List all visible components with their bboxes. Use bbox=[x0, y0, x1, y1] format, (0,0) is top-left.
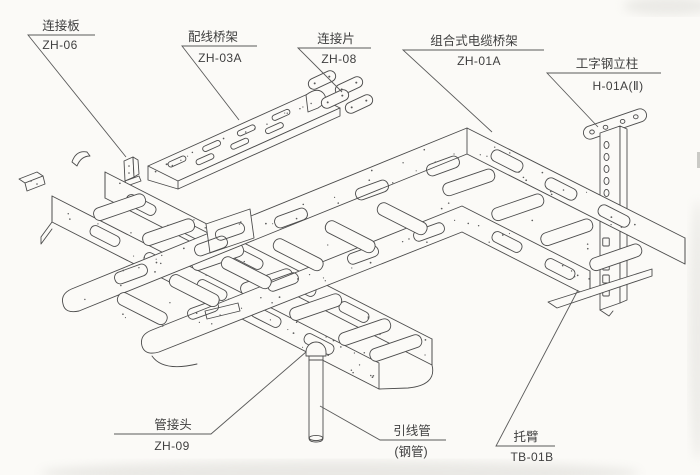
pipe-body bbox=[309, 356, 323, 442]
callout-tb01b: 托臂 TB-01B bbox=[496, 290, 578, 464]
callout-zh06: 连接板 ZH-06 bbox=[28, 18, 126, 157]
callout-zh09: 管接头 ZH-09 bbox=[114, 352, 306, 453]
label-cable-tray-code: ZH-01A bbox=[457, 54, 501, 68]
isometric-drawing: 连接板 ZH-06 配线桥架 ZH-03A 连接片 ZH-08 组合式电缆桥架 … bbox=[0, 0, 700, 475]
label-column-title: 工字钢立柱 bbox=[576, 56, 639, 71]
label-leader bbox=[496, 290, 578, 446]
label-leader bbox=[28, 35, 126, 157]
label-column-code: H-01A(Ⅱ) bbox=[592, 79, 643, 93]
label-pipe-joint-code: ZH-09 bbox=[154, 439, 189, 453]
callout-zh03a: 配线桥架 ZH-03A bbox=[182, 30, 257, 120]
label-connection-plate-title: 连接板 bbox=[42, 18, 80, 33]
callout-zh01a: 组合式电缆桥架 ZH-01A bbox=[403, 33, 544, 132]
label-connector-strip-code: ZH-08 bbox=[321, 52, 356, 66]
clip-front bbox=[124, 157, 134, 181]
wiring-tray-zh03a bbox=[148, 90, 340, 189]
label-support-arm-title: 托臂 bbox=[513, 430, 538, 444]
label-connector-strip-title: 连接片 bbox=[317, 31, 355, 46]
lead-pipe-assembly bbox=[306, 342, 326, 442]
label-connection-plate-code: ZH-06 bbox=[42, 38, 77, 52]
callout-pipe: 引线管 (钢管) bbox=[320, 406, 446, 459]
catalog-figure-page: 连接板 ZH-06 配线桥架 ZH-03A 连接片 ZH-08 组合式电缆桥架 … bbox=[0, 0, 700, 475]
label-wiring-tray-title: 配线桥架 bbox=[188, 30, 238, 44]
curved-plate bbox=[72, 152, 90, 166]
label-cable-tray-title: 组合式电缆桥架 bbox=[430, 33, 518, 48]
end-skirt bbox=[152, 356, 197, 367]
label-support-arm-code: TB-01B bbox=[510, 450, 553, 464]
label-pipe-joint-title: 管接头 bbox=[154, 417, 192, 432]
label-lead-pipe-title: 引线管 bbox=[393, 423, 431, 438]
label-lead-pipe-code: (钢管) bbox=[394, 444, 427, 459]
label-leader bbox=[114, 352, 306, 434]
clip-side bbox=[133, 157, 139, 177]
label-wiring-tray-code: ZH-03A bbox=[198, 51, 242, 65]
